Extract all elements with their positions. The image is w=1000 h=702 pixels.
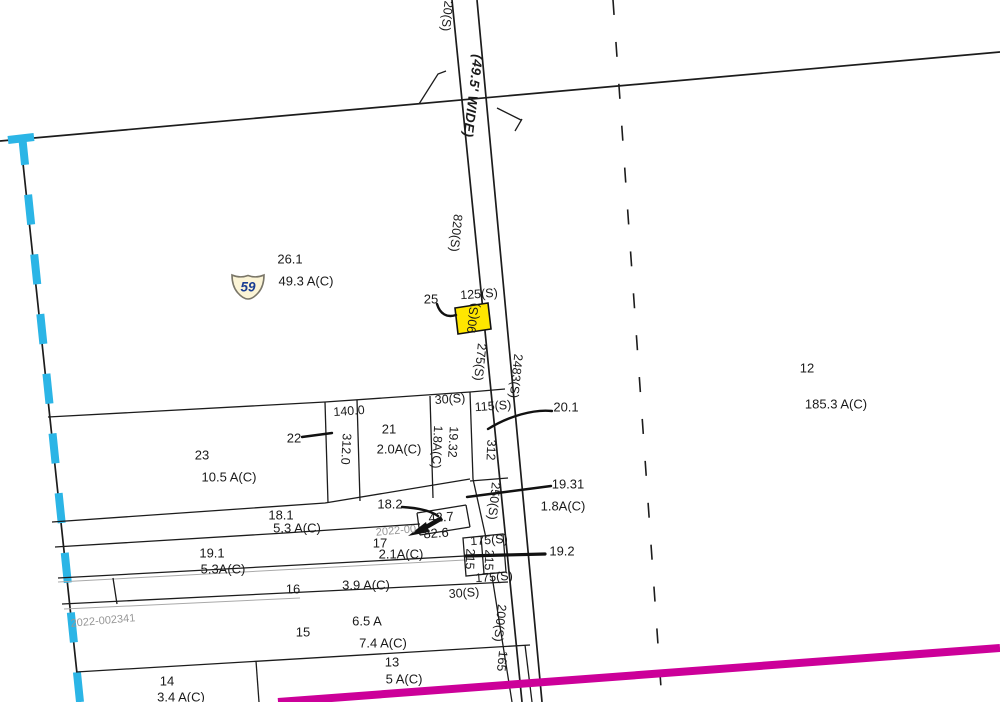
dim-42-7: 42.7 xyxy=(428,509,454,526)
parcel-14-area: 3.4 A(C) xyxy=(157,690,205,702)
parcel-18-2-number: 18.2 xyxy=(377,497,402,512)
dim-30s-bottom: 30(S) xyxy=(448,585,479,601)
dim-215-left: 215 xyxy=(462,548,477,570)
parcel-21-number: 21 xyxy=(382,422,396,437)
dim-1-8ac-rotated: 1.8A(C) xyxy=(429,425,445,469)
parcel-19-1-number: 19.1 xyxy=(199,546,224,561)
leader-lines xyxy=(302,304,552,556)
parcel-19-31-number: 19.31 xyxy=(552,477,585,492)
dim-30s-top: 30(S) xyxy=(434,391,465,407)
dim-312-0: 312.0 xyxy=(338,433,354,465)
parcel-23-number: 23 xyxy=(195,448,209,463)
parcel-20-1-number: 20.1 xyxy=(553,400,578,415)
parcel-15-area: 7.4 A(C) xyxy=(359,636,407,651)
parcel-23-area: 10.5 A(C) xyxy=(202,470,257,485)
parcel-16-area: 3.9 A(C) xyxy=(342,578,390,593)
parcel-26-1-area: 49.3 A(C) xyxy=(279,274,334,289)
dim-312: 312 xyxy=(483,439,498,461)
dim-175s-top: 175(S) xyxy=(470,532,508,549)
parcel-19-1-area: 5.3A(C) xyxy=(201,562,246,577)
parcel-17-area: 2.1A(C) xyxy=(379,547,424,562)
north-boundary-line xyxy=(0,52,1000,141)
dim-19-32: 19.32 xyxy=(445,426,461,458)
parcel-22-number: 22 xyxy=(287,431,301,446)
dim-82-6: 82.6 xyxy=(423,525,449,542)
parcel-map-view[interactable]: 59 20(S)(49.5' WIDE)820(S)26.149.3 A(C)2… xyxy=(0,0,1000,702)
parcel-12-area: 185.3 A(C) xyxy=(805,397,867,412)
parcel-21-area: 2.0A(C) xyxy=(377,442,422,457)
parcel-25-number: 25 xyxy=(424,292,438,307)
parcel-18-1-area: 5.3 A(C) xyxy=(273,521,321,536)
dashed-district-line xyxy=(613,0,662,702)
map-canvas[interactable] xyxy=(0,0,1000,702)
dim-125s: 125(S) xyxy=(460,286,498,303)
parcel-12-number: 12 xyxy=(800,361,814,376)
parcel-14-number: 14 xyxy=(160,674,174,689)
parcel-13-area: 5 A(C) xyxy=(386,672,423,687)
dim-115s: 115(S) xyxy=(474,398,511,415)
dim-165: 165 xyxy=(494,650,510,672)
parcel-15-number: 15 xyxy=(296,625,310,640)
parcel-19-2-number: 19.2 xyxy=(549,544,574,559)
route-shield-number: 59 xyxy=(240,280,255,295)
route-shield-59: 59 xyxy=(229,272,267,301)
parcel-15-area-deed: 6.5 A xyxy=(352,614,382,629)
parcel-19-31-area: 1.8A(C) xyxy=(541,499,586,514)
dim-215-right: 215 xyxy=(481,549,496,571)
parcel-16-number: 16 xyxy=(286,582,300,597)
parcel-26-1-number: 26.1 xyxy=(277,252,302,267)
dim-175s-bottom: 175(S) xyxy=(475,569,513,586)
parcel-13-number: 13 xyxy=(385,655,399,670)
dim-140-0: 140.0 xyxy=(333,403,365,419)
